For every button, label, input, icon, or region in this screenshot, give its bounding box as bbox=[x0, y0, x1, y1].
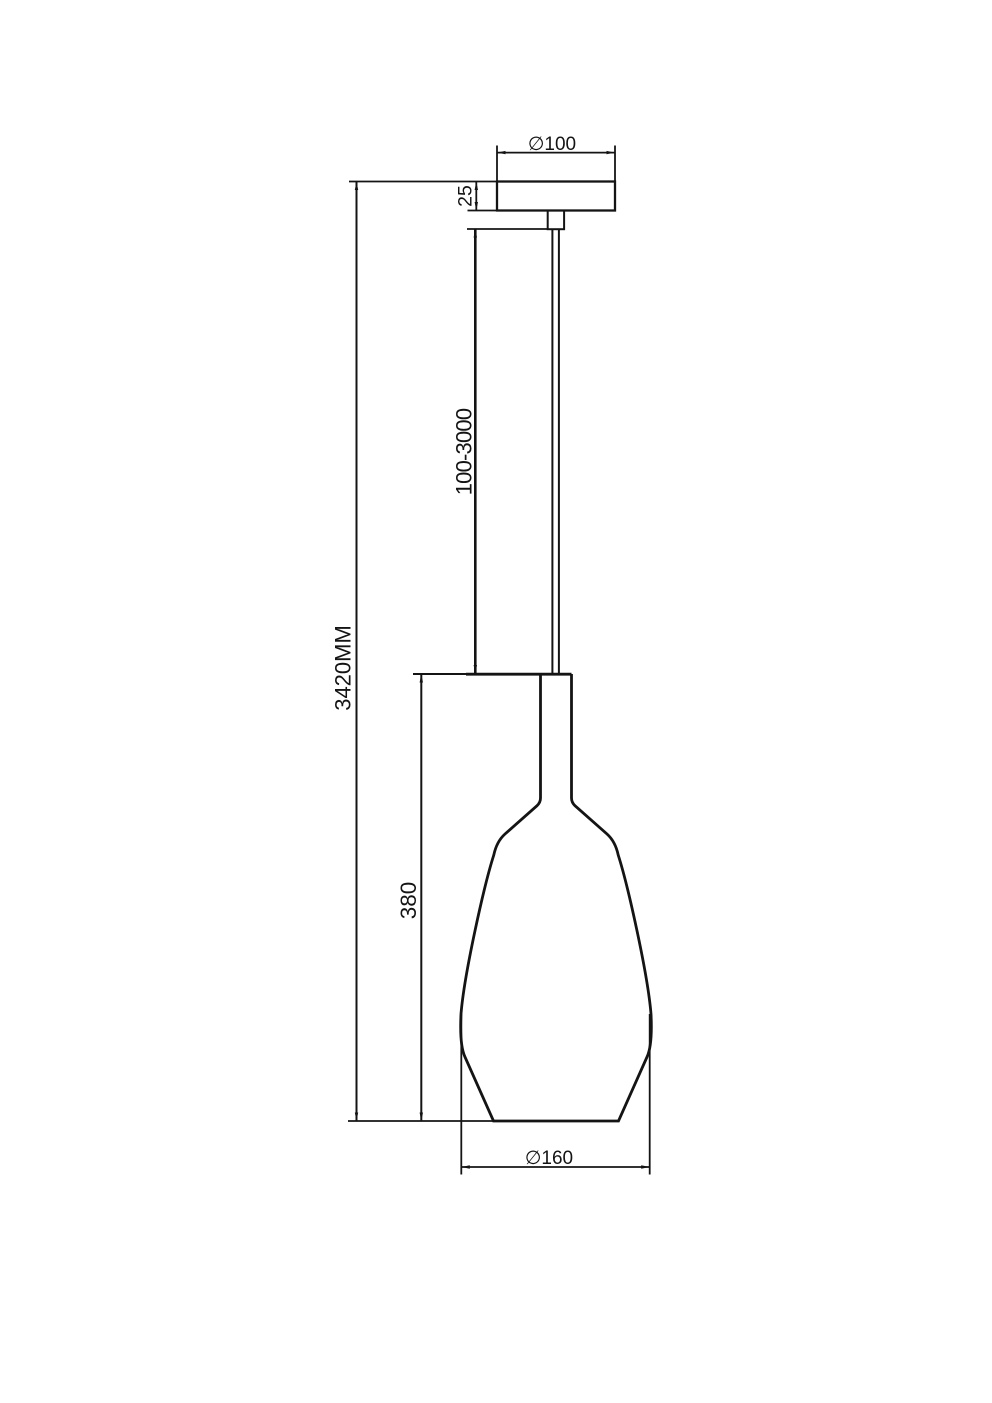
svg-text:∅100: ∅100 bbox=[528, 134, 576, 155]
svg-text:3420MM: 3420MM bbox=[331, 625, 356, 711]
svg-text:380: 380 bbox=[396, 882, 421, 920]
svg-text:25: 25 bbox=[455, 185, 477, 207]
svg-text:∅160: ∅160 bbox=[525, 1148, 573, 1169]
svg-text:100-3000: 100-3000 bbox=[452, 408, 477, 495]
